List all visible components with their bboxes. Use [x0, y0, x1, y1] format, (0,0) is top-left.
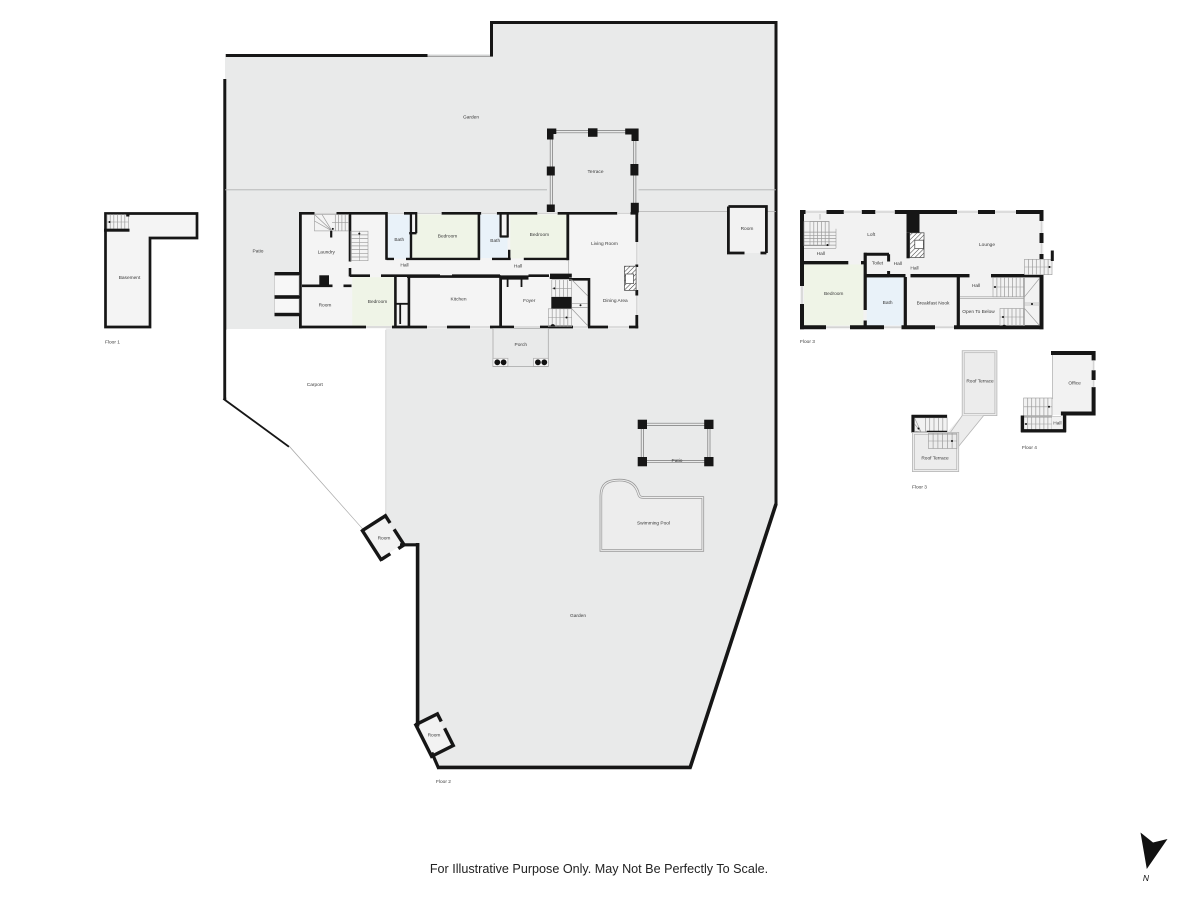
svg-text:Hall: Hall	[1053, 420, 1061, 426]
svg-text:Room: Room	[378, 536, 391, 542]
svg-text:For Illustrative Purpose Only.: For Illustrative Purpose Only. May Not B…	[430, 862, 768, 876]
svg-text:Patio: Patio	[253, 249, 264, 255]
svg-text:Bath: Bath	[394, 237, 404, 243]
svg-text:Bath: Bath	[883, 300, 893, 306]
svg-text:Open To Below: Open To Below	[962, 309, 995, 315]
svg-text:Patio: Patio	[672, 458, 683, 464]
svg-text:Floor 3: Floor 3	[800, 339, 815, 345]
svg-text:Hall: Hall	[910, 266, 918, 272]
svg-text:Floor 4: Floor 4	[1022, 445, 1037, 451]
svg-text:Floor 3: Floor 3	[912, 485, 927, 491]
svg-text:Bedroom: Bedroom	[824, 291, 843, 297]
svg-text:Kitchen: Kitchen	[451, 297, 467, 303]
svg-text:Hall: Hall	[817, 251, 825, 257]
svg-text:Dining Area: Dining Area	[603, 298, 628, 304]
svg-text:Hall: Hall	[972, 283, 980, 289]
svg-text:Room: Room	[428, 733, 441, 739]
svg-text:Floor 2: Floor 2	[436, 779, 451, 785]
svg-text:Bath: Bath	[490, 238, 500, 244]
svg-text:Porch: Porch	[515, 342, 528, 348]
svg-text:Roof Terrace: Roof Terrace	[921, 456, 949, 462]
svg-text:Hall: Hall	[400, 263, 408, 269]
svg-text:Bedroom: Bedroom	[530, 232, 549, 238]
svg-text:Foyer: Foyer	[523, 298, 536, 304]
svg-text:N: N	[1143, 873, 1150, 883]
svg-text:Living Room: Living Room	[591, 241, 618, 247]
svg-text:Garden: Garden	[570, 613, 586, 619]
svg-text:Roof Terrace: Roof Terrace	[966, 379, 994, 385]
svg-text:Swimming Pool: Swimming Pool	[637, 521, 670, 527]
svg-text:Terrace: Terrace	[588, 169, 604, 175]
svg-text:Breakfast Nook: Breakfast Nook	[917, 301, 950, 307]
svg-text:Loft: Loft	[867, 232, 876, 238]
svg-text:Room: Room	[741, 226, 754, 232]
svg-text:Office: Office	[1068, 380, 1081, 386]
svg-text:Laundry: Laundry	[318, 250, 336, 256]
svg-text:Floor 1: Floor 1	[105, 340, 120, 346]
svg-text:Garden: Garden	[463, 115, 479, 121]
svg-text:Hall: Hall	[894, 261, 902, 267]
svg-text:Bedroom: Bedroom	[438, 233, 457, 239]
svg-text:Hall: Hall	[514, 264, 522, 270]
svg-text:Lounge: Lounge	[979, 242, 995, 248]
svg-text:Basement: Basement	[119, 275, 141, 281]
svg-text:Bedroom: Bedroom	[368, 299, 387, 305]
svg-text:Carport: Carport	[307, 382, 324, 388]
svg-text:Toilet: Toilet	[872, 260, 884, 266]
svg-text:Room: Room	[319, 303, 332, 309]
